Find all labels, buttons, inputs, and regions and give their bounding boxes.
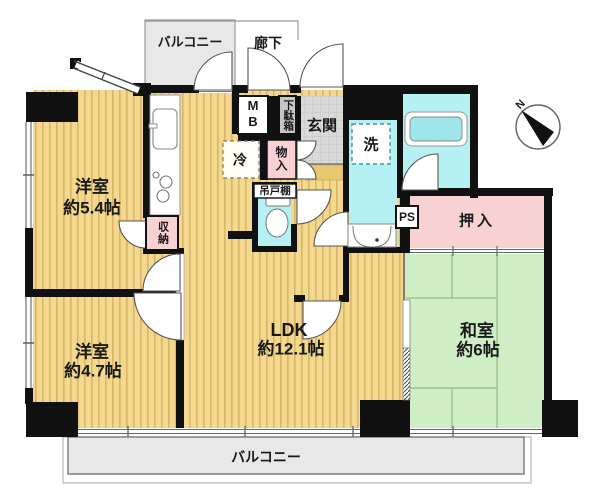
- toilet: [266, 194, 290, 237]
- mb-door: [248, 48, 290, 90]
- kitchen-counter: [149, 95, 180, 215]
- label-japanese-name: 和室: [460, 323, 494, 340]
- label-western2-size: 約4.7帖: [64, 363, 122, 380]
- floor-plan-drawing: [0, 0, 600, 502]
- label-washer: 洗: [363, 138, 378, 153]
- label-oshiire: 押入: [459, 214, 495, 229]
- label-entrance: 玄関: [307, 119, 337, 134]
- label-tsuridodana: 吊戸棚: [259, 186, 291, 197]
- label-western1-size: 約5.4帖: [63, 200, 121, 217]
- label-shunou: 収納: [157, 221, 168, 245]
- label-mb: MB: [247, 98, 260, 130]
- label-balcony-top: バルコニー: [158, 36, 223, 49]
- label-ps: PS: [399, 211, 415, 223]
- label-fridge: 冷: [233, 153, 247, 167]
- label-ldk-size: 約12.1帖: [257, 341, 324, 358]
- label-getabako: 下駄箱: [283, 99, 294, 131]
- label-balcony-bottom: バルコニー: [231, 450, 301, 464]
- label-corridor: 廊下: [254, 36, 282, 50]
- label-ldk-name: LDK: [271, 321, 308, 339]
- floor-plan: バルコニー 廊下 洋室 約5.4帖 洋室 約4.7帖 LDK 約12.1帖 和室…: [0, 0, 600, 502]
- entrance-door: [300, 44, 343, 87]
- label-western1-name: 洋室: [75, 179, 109, 196]
- label-japanese-size: 約6帖: [456, 342, 499, 359]
- label-western2-name: 洋室: [75, 344, 109, 361]
- wash-basin: [348, 224, 396, 247]
- bathtub: [405, 112, 467, 146]
- kitchen-sink: [153, 109, 177, 149]
- faucet-icon: [149, 124, 157, 128]
- label-monoire: 物入: [275, 146, 287, 172]
- compass: [516, 105, 560, 149]
